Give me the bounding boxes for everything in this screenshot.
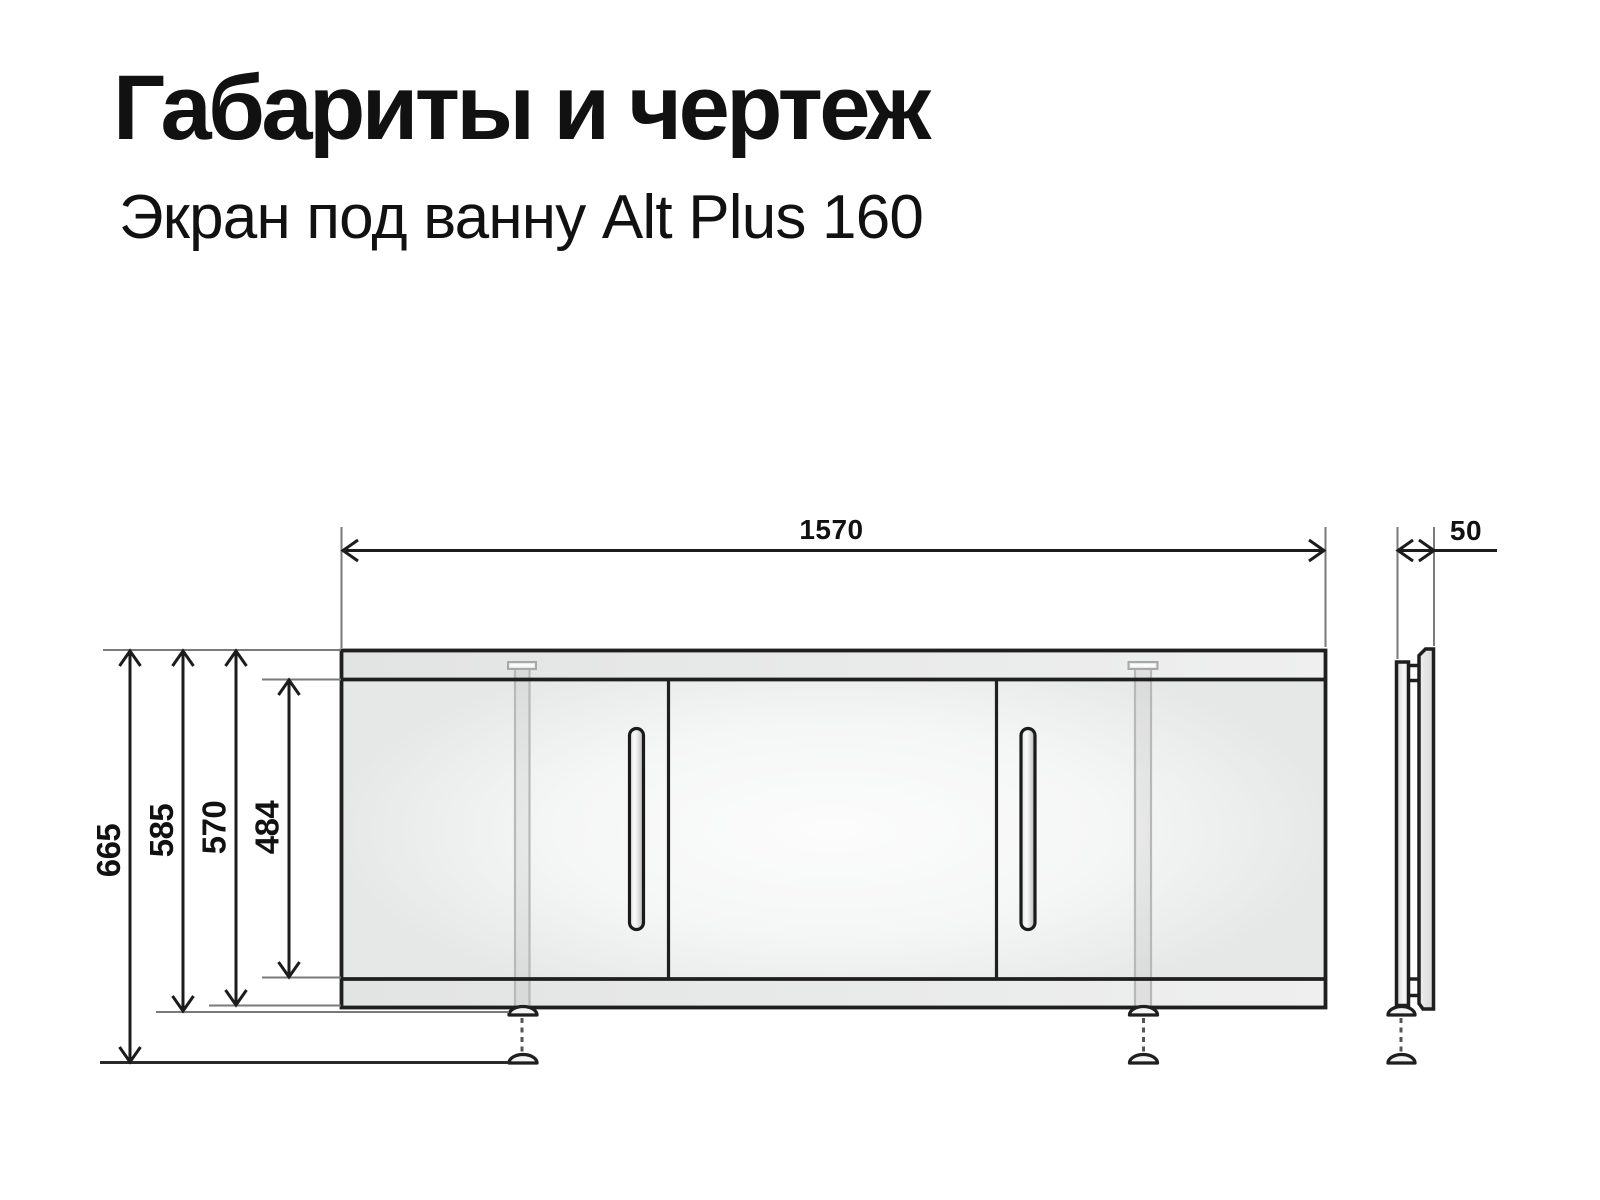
svg-text:50: 50 xyxy=(1450,515,1482,546)
svg-text:570: 570 xyxy=(196,801,233,855)
svg-text:665: 665 xyxy=(90,824,127,878)
svg-text:1570: 1570 xyxy=(799,514,863,545)
svg-text:Экран под ванну Alt Plus 160: Экран под ванну Alt Plus 160 xyxy=(119,183,923,252)
svg-text:Габариты и чертеж: Габариты и чертеж xyxy=(113,57,932,159)
svg-text:585: 585 xyxy=(143,804,180,858)
svg-text:484: 484 xyxy=(249,800,286,855)
